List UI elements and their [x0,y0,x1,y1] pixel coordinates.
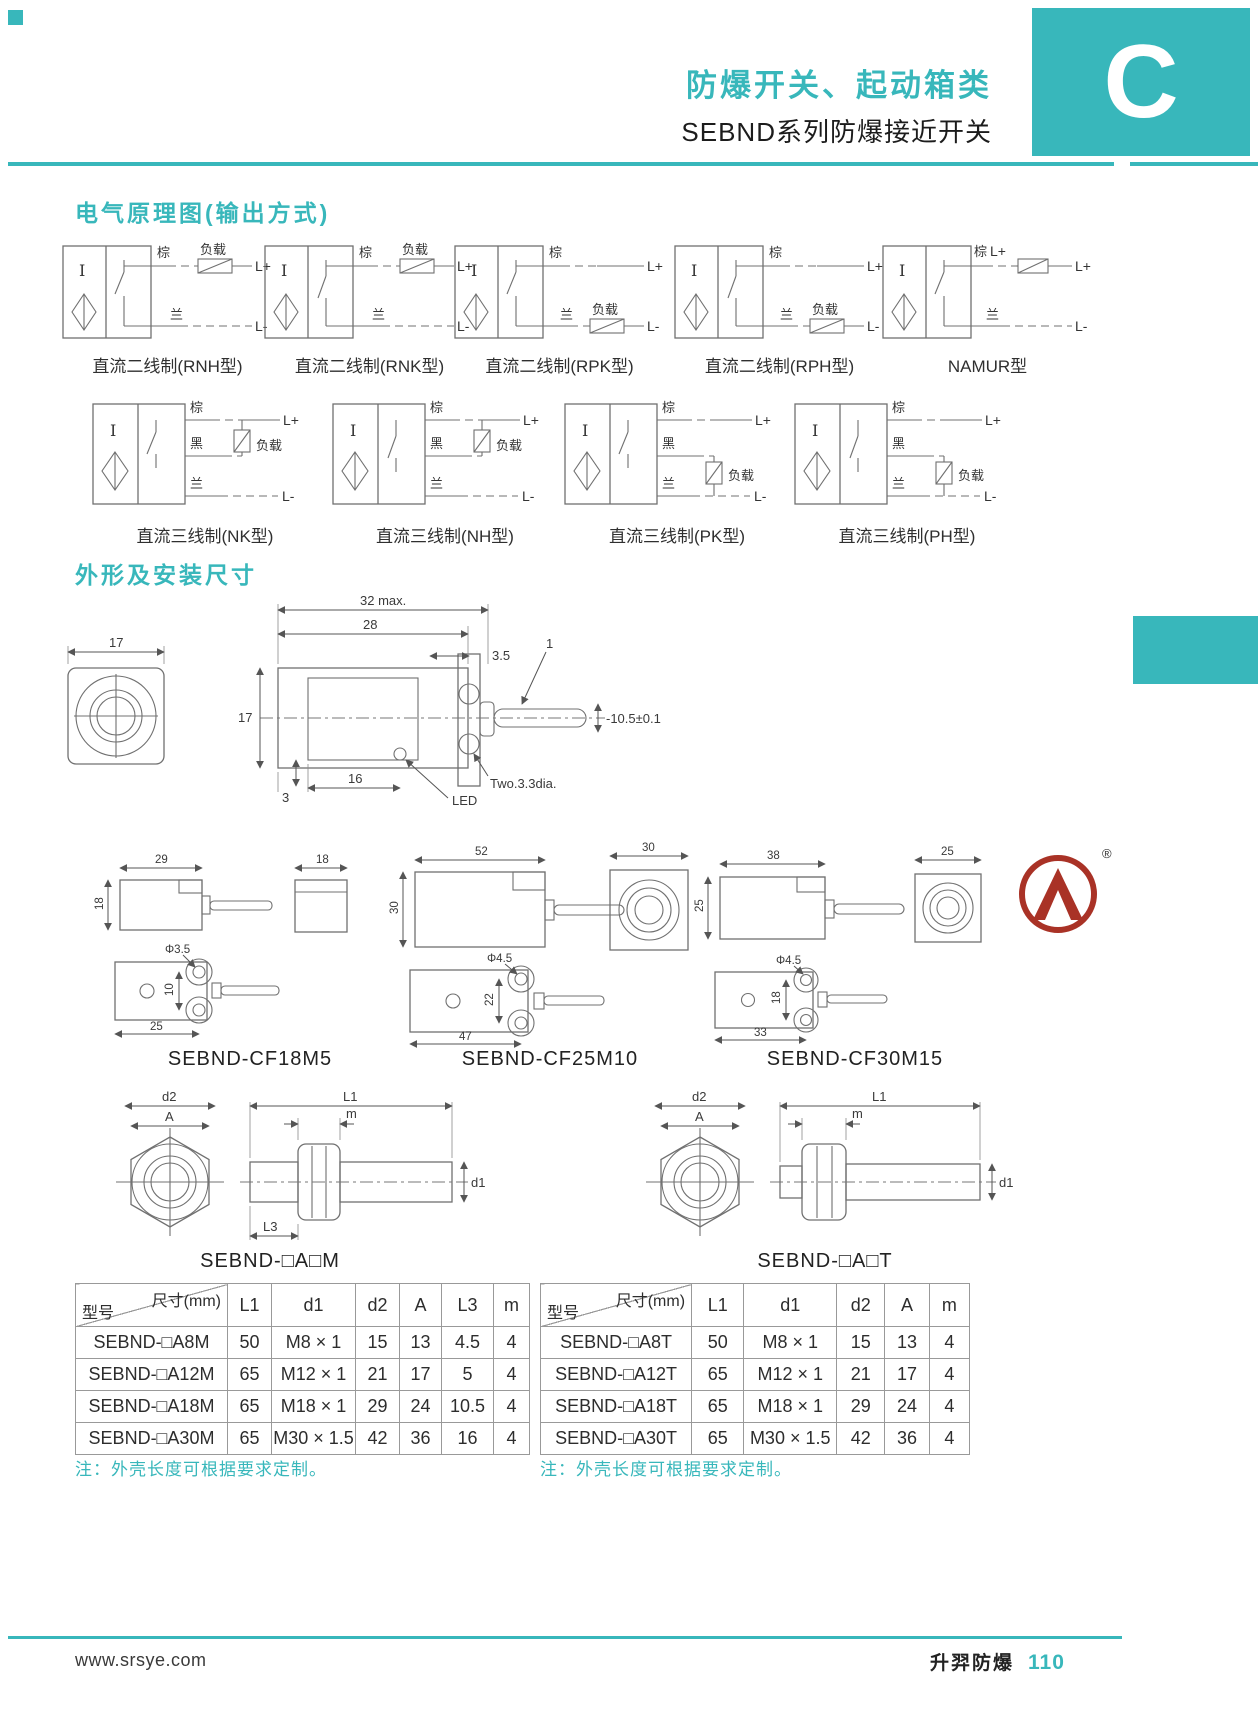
table-row: SEBND-□A18T 65 M18 × 1 29 24 4 [541,1391,970,1423]
diagram-label: 直流三线制(NK型) [90,522,320,547]
model-cell: SEBND-□A12M [76,1359,228,1391]
terminal-lplus: L+ [1075,258,1091,274]
value-cell: 24 [885,1391,929,1423]
dim-base-offset: 3 [282,790,289,805]
circuit-diagram-pk: I 棕 L+ 黑 负载 兰 L- [562,392,792,514]
terminal-lminus: L- [984,488,997,504]
label-holes: Two.3.3dia. [490,776,557,791]
col-header: d2 [837,1284,885,1327]
circuit-diagram-nk: I 棕 L+ 黑 负载 兰 L- [90,392,320,514]
diagram-label: 直流三线制(PK型) [562,522,792,547]
sensor-symbol: I [110,421,116,440]
dim-d1: d1 [471,1175,485,1190]
value-cell: 4 [929,1359,969,1391]
label-led: LED [452,793,477,808]
terminal-lminus: L- [754,488,767,504]
value-cell: M30 × 1.5 [272,1423,356,1455]
dim-face-width: 18 [316,854,329,866]
col-header: L1 [692,1284,744,1327]
circuit-diagram-rnk: I 棕 负载 L+ 兰 L- [262,236,477,348]
threaded-drawing-t: d2 A L1 m d1 [630,1090,1020,1255]
terminal-lplus: L+ [755,412,771,428]
value-cell: 65 [228,1359,272,1391]
value-cell: 42 [837,1423,885,1455]
diagram-label: 直流二线制(RPK型) [452,352,667,377]
terminal-lplus: L+ [647,258,663,274]
page-subtitle: SEBND系列防爆接近开关 [360,112,992,149]
value-cell: 17 [885,1359,929,1391]
header-rule [8,162,1114,166]
table-row: SEBND-□A18M 65 M18 × 1 29 24 10.5 4 [76,1391,530,1423]
wire-label-brown: 棕 [359,245,372,260]
page-number: 110 [1028,1651,1065,1675]
wire-label-blue: 兰 [170,307,183,322]
wire-label-load: 负载 [812,302,838,317]
dim-led-offset: 16 [348,771,362,786]
section-title-dimensions: 外形及安装尺寸 [75,556,257,590]
spec-table-m: 尺寸(mm) 型号 L1 d1 d2 A L3 m SEBND-□A8M 50 … [75,1283,530,1455]
value-cell: 15 [837,1327,885,1359]
wire-label-brown: 棕 [892,400,905,415]
value-cell: 65 [228,1391,272,1423]
model-name-cf30m15: SEBND-CF30M15 [705,1048,1005,1071]
dim-cable: -10.5±0.1 [606,711,661,726]
value-cell: 21 [356,1359,400,1391]
dim-hole-span: 22 [484,993,496,1006]
dim-d2: d2 [162,1089,176,1104]
model-cell: SEBND-□A8M [76,1327,228,1359]
wire-label-load: 负载 [728,468,754,483]
value-cell: 65 [692,1423,744,1455]
wire-label-black: 黑 [430,436,443,451]
value-cell: 29 [356,1391,400,1423]
sensor-symbol: I [471,261,477,280]
model-cell: SEBND-□A18M [76,1391,228,1423]
dim-d2: d2 [692,1089,706,1104]
table-corner-cell: 尺寸(mm) 型号 [76,1284,228,1327]
table-row: SEBND-□A30T 65 M30 × 1.5 42 36 4 [541,1423,970,1455]
header-rule-right [1130,162,1258,166]
wire-label-load: 负载 [958,468,984,483]
value-cell: 13 [400,1327,442,1359]
model-cell: SEBND-□A18T [541,1391,692,1423]
value-cell: 15 [356,1327,400,1359]
dim-side-width: 52 [475,846,488,858]
terminal-lminus: L- [1075,318,1088,334]
corner-label-model: 型号 [82,1299,114,1323]
wire-label-blue: 兰 [892,476,905,491]
wire-label-brown: 棕 [769,245,782,260]
diagram-label: 直流二线制(RNK型) [262,352,477,377]
dim-side-width: 29 [155,854,168,866]
threaded-drawing-m: d2 A L1 m d1 L3 [100,1090,490,1255]
value-cell: 36 [885,1423,929,1455]
dim-hole-offset: 3.5 [492,648,510,663]
wire-label-brown: 棕 [549,245,562,260]
value-cell: M18 × 1 [272,1391,356,1423]
value-cell: 65 [692,1359,744,1391]
value-cell: 29 [837,1391,885,1423]
wire-label-blue: 兰 [780,307,793,322]
wire-label-load: 负载 [402,242,428,257]
dim-height: 17 [238,710,252,725]
side-chapter-tab [1133,616,1258,684]
dim-total-width: 32 max. [360,593,406,608]
col-header: m [929,1284,969,1327]
value-cell: 4 [929,1423,969,1455]
circuit-diagram-rph: I 棕 L+ 兰 负载 L- [672,236,887,348]
table-row: SEBND-□A30M 65 M30 × 1.5 42 36 16 4 [76,1423,530,1455]
terminal-lplus: L+ [523,412,539,428]
table-row: SEBND-□A12T 65 M12 × 1 21 17 4 [541,1359,970,1391]
circuit-diagram-rpk: I 棕 L+ 兰 负载 L- [452,236,667,348]
terminal-lplus: L+ [985,412,1001,428]
value-cell: M30 × 1.5 [744,1423,837,1455]
sensor-symbol: I [812,421,818,440]
value-cell: 42 [356,1423,400,1455]
chapter-letter: C [1103,30,1178,134]
model-cell: SEBND-□A12T [541,1359,692,1391]
circuit-diagram-nh: I 棕 L+ 黑 负载 兰 L- [330,392,560,514]
table-row: SEBND-□A12M 65 M12 × 1 21 17 5 4 [76,1359,530,1391]
value-cell: 5 [442,1359,494,1391]
value-cell: 21 [837,1359,885,1391]
wire-label-brown: 棕 [662,400,675,415]
model-name-cf25m10: SEBND-CF25M10 [400,1048,700,1071]
dim-side-height: 30 [389,901,401,914]
dim-m: m [852,1106,863,1121]
model-name-cf18m5: SEBND-CF18M5 [100,1048,400,1071]
model-cell: SEBND-□A8T [541,1327,692,1359]
value-cell: 4 [494,1423,530,1455]
dim-mount-width: 33 [754,1027,767,1039]
diagram-label: 直流二线制(RNH型) [60,352,275,377]
col-header: L3 [442,1284,494,1327]
dim-l1: L1 [343,1089,357,1104]
table-note-t: 注：外壳长度可根据要求定制。 [540,1455,792,1480]
wire-label-brown: 棕 [190,400,203,415]
model-drawing-cf30m15: 38 25 25 Φ4.5 18 33 [700,822,1010,1052]
sensor-symbol: I [899,261,905,280]
value-cell: M8 × 1 [744,1327,837,1359]
wire-label-blue: 兰 [560,307,573,322]
wire-label-black: 黑 [892,436,905,451]
col-header: A [885,1284,929,1327]
terminal-lminus: L- [282,488,295,504]
corner-label-size: 尺寸(mm) [616,1287,685,1311]
wire-label-black: 黑 [190,436,203,451]
value-cell: 4 [929,1391,969,1423]
footer-website: www.srsye.com [75,1650,207,1671]
circuit-diagram-ph: I 棕 L+ 黑 负载 兰 L- [792,392,1022,514]
wire-label-blue: 兰 [372,307,385,322]
ref-cable: 1 [546,636,553,651]
dim-side-height: 25 [694,899,706,912]
registered-mark: ® [1102,846,1112,861]
chapter-tab: C [1032,8,1250,156]
col-header: L1 [228,1284,272,1327]
table-row: SEBND-□A8M 50 M8 × 1 15 13 4.5 4 [76,1327,530,1359]
spec-table-t: 尺寸(mm) 型号 L1 d1 d2 A m SEBND-□A8T 50 M8 … [540,1283,970,1455]
dim-face-width: 17 [109,635,123,650]
catalog-page: 防爆开关、起动箱类 SEBND系列防爆接近开关 C 电气原理图(输出方式) I … [0,0,1258,1719]
dim-m: m [346,1106,357,1121]
dim-hole-span: 18 [771,991,783,1004]
dim-face-width: 30 [642,842,655,854]
dim-d1: d1 [999,1175,1013,1190]
value-cell: 24 [400,1391,442,1423]
value-cell: 16 [442,1423,494,1455]
value-cell: 4 [494,1359,530,1391]
value-cell: 4 [929,1327,969,1359]
circuit-diagram-rnh: I 棕 负载 L+ 兰 L- [60,236,275,348]
diagram-label: 直流三线制(NH型) [330,522,560,547]
sensor-symbol: I [79,261,85,280]
dim-l3: L3 [263,1219,277,1234]
dim-hole-dia: Φ4.5 [776,955,801,967]
col-header: d1 [272,1284,356,1327]
sensor-symbol: I [691,261,697,280]
corner-label-model: 型号 [547,1299,579,1323]
value-cell: 13 [885,1327,929,1359]
wire-label-brown: 棕 [974,244,987,259]
dim-a: A [165,1109,174,1124]
dim-l1: L1 [872,1089,886,1104]
dim-face-width: 25 [941,846,954,858]
value-cell: 50 [228,1327,272,1359]
page-title: 防爆开关、起动箱类 [360,60,992,105]
dim-side-height: 18 [94,897,106,910]
corner-accent-square [8,10,23,25]
wire-label-lplus: L+ [990,243,1006,259]
dim-side-width: 38 [767,850,780,862]
col-header: d2 [356,1284,400,1327]
value-cell: 4 [494,1391,530,1423]
wire-label-black: 黑 [662,436,675,451]
terminal-lminus: L- [647,318,660,334]
wire-label-load: 负载 [200,242,226,257]
footer-brand: 升羿防爆 [930,1648,1014,1675]
circuit-diagram-namur: I 棕 L+ L+ 兰 L- [880,236,1095,348]
value-cell: M18 × 1 [744,1391,837,1423]
wire-label-load: 负载 [256,438,282,453]
col-header: m [494,1284,530,1327]
value-cell: 4 [494,1327,530,1359]
sensor-symbol: I [281,261,287,280]
wire-label-brown: 棕 [157,245,170,260]
model-cell: SEBND-□A30T [541,1423,692,1455]
footer-rule [8,1636,1122,1639]
sensor-symbol: I [582,421,588,440]
section-title-circuit: 电气原理图(输出方式) [75,194,330,228]
value-cell: 36 [400,1423,442,1455]
wire-label-blue: 兰 [986,307,999,322]
diagram-label: 直流三线制(PH型) [792,522,1022,547]
brand-logo: ® [1012,840,1117,940]
value-cell: 50 [692,1327,744,1359]
model-cell: SEBND-□A30M [76,1423,228,1455]
dim-hole-dia: Φ4.5 [487,953,512,965]
main-dimension-drawing: 17 32 max. 28 3.5 17 1 -10.5±0.1 3 16 LE… [60,596,710,811]
model-drawing-cf25m10: 52 30 30 Φ4.5 22 47 [395,822,705,1052]
model-drawing-cf18m5: 29 18 18 Φ3.5 10 25 [95,822,405,1052]
corner-label-size: 尺寸(mm) [152,1287,221,1311]
terminal-lplus: L+ [283,412,299,428]
value-cell: 4.5 [442,1327,494,1359]
col-header: d1 [744,1284,837,1327]
threaded-label-m: SEBND-□A□M [150,1250,390,1273]
wire-label-load: 负载 [592,302,618,317]
dim-hole-span: 10 [164,983,176,996]
wire-label-brown: 棕 [430,400,443,415]
table-corner-cell: 尺寸(mm) 型号 [541,1284,692,1327]
dim-a: A [695,1109,704,1124]
sensor-symbol: I [350,421,356,440]
value-cell: 10.5 [442,1391,494,1423]
terminal-lminus: L- [522,488,535,504]
logo-mark [1033,868,1083,920]
dim-hole-dia: Φ3.5 [165,944,190,956]
dim-body-width: 28 [363,617,377,632]
value-cell: 17 [400,1359,442,1391]
footer-brand-block: 升羿防爆 110 [930,1648,1065,1675]
wire-label-blue: 兰 [430,476,443,491]
table-row: SEBND-□A8T 50 M8 × 1 15 13 4 [541,1327,970,1359]
diagram-label: 直流二线制(RPH型) [672,352,887,377]
terminal-lminus: L- [867,318,880,334]
wire-label-blue: 兰 [662,476,675,491]
wire-label-load: 负载 [496,438,522,453]
value-cell: M12 × 1 [744,1359,837,1391]
dim-mount-width: 47 [459,1031,472,1043]
value-cell: 65 [228,1423,272,1455]
value-cell: 65 [692,1391,744,1423]
dim-mount-width: 25 [150,1021,163,1033]
table-note-m: 注：外壳长度可根据要求定制。 [75,1455,327,1480]
wire-label-blue: 兰 [190,476,203,491]
col-header: A [400,1284,442,1327]
value-cell: M8 × 1 [272,1327,356,1359]
value-cell: M12 × 1 [272,1359,356,1391]
header: 防爆开关、起动箱类 SEBND系列防爆接近开关 [360,60,992,149]
threaded-label-t: SEBND-□A□T [700,1250,950,1273]
diagram-label: NAMUR型 [880,352,1095,377]
